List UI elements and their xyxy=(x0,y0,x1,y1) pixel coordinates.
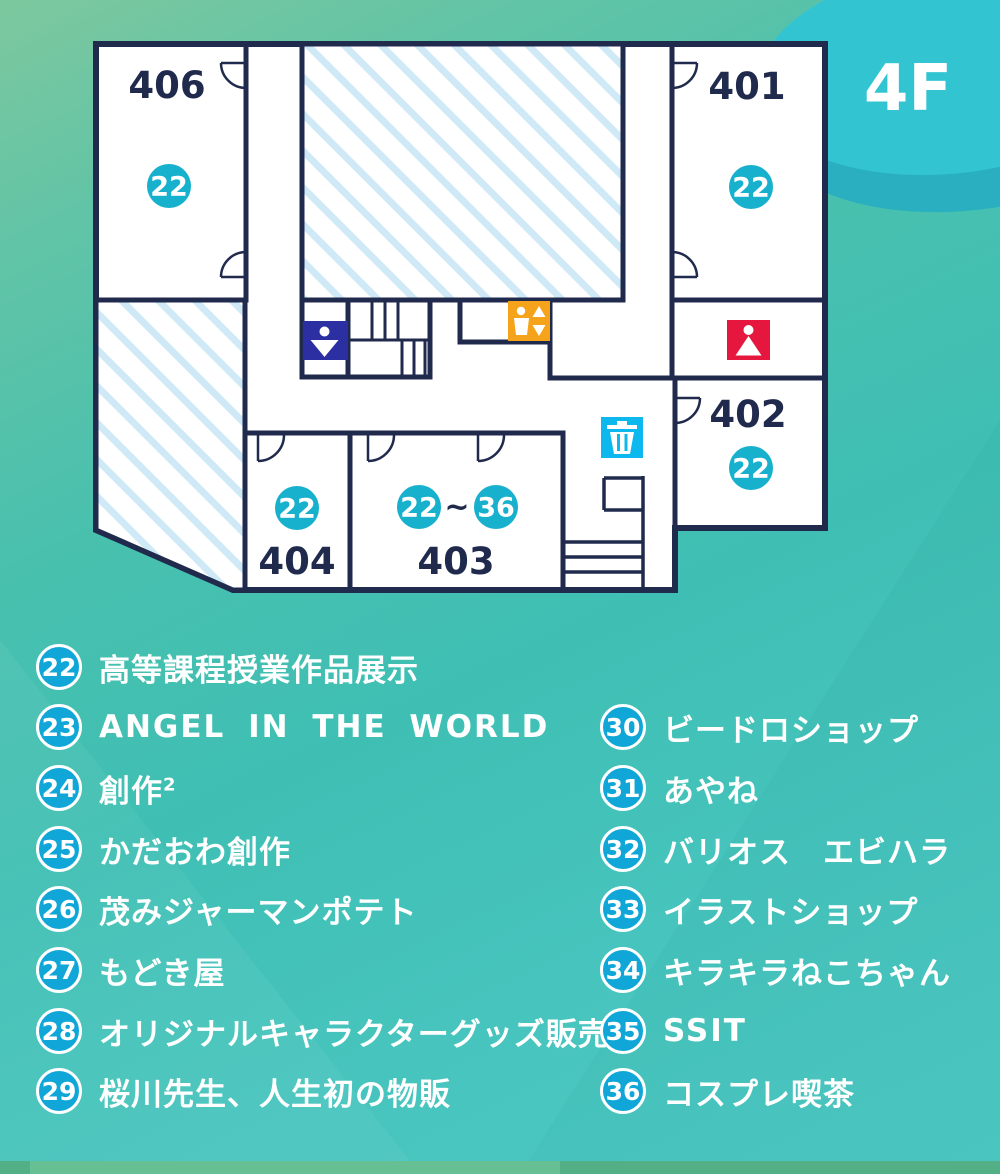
womens-restroom-icon xyxy=(727,320,770,360)
hatch-area-left xyxy=(96,300,245,590)
legend-num-badge: 26 xyxy=(36,886,82,932)
legend-num-badge: 35 xyxy=(600,1008,646,1054)
legend-row: 35 SSIT xyxy=(600,1008,747,1054)
legend-row: 32 バリオス エビハラ xyxy=(600,826,951,872)
booth-badge-402: 22 xyxy=(732,454,770,485)
hatch-area-center xyxy=(302,44,623,300)
legend-row: 33 イラストショップ xyxy=(600,886,918,932)
legend-num-badge: 34 xyxy=(600,947,646,993)
booth-badge-401: 22 xyxy=(732,173,770,204)
legend-label: ビードロショップ xyxy=(663,705,919,750)
legend-label: バリオス エビハラ xyxy=(663,827,951,872)
legend-row: 27 もどき屋 xyxy=(36,947,225,993)
legend-row: 31 あやね xyxy=(600,765,759,811)
legend-num-badge: 30 xyxy=(600,704,646,750)
legend-label-sup: 2 xyxy=(163,774,177,795)
legend-row: 28 オリジナルキャラクターグッズ販売 xyxy=(36,1008,610,1054)
legend-label: 桜川先生、人生初の物販 xyxy=(99,1069,451,1114)
legend-num-badge: 32 xyxy=(600,826,646,872)
legend-label: イラストショップ xyxy=(663,887,918,932)
legend-label: 高等課程授業作品展示 xyxy=(99,645,419,690)
legend-row: 25 かだおわ創作 xyxy=(36,826,291,872)
mens-restroom-icon xyxy=(303,321,348,360)
legend-row: 29 桜川先生、人生初の物販 xyxy=(36,1068,451,1114)
legend-num-badge: 24 xyxy=(36,765,82,811)
legend-num-badge: 25 xyxy=(36,826,82,872)
room-406-number: 406 xyxy=(128,64,205,107)
room-401-number: 401 xyxy=(708,65,785,108)
legend-label-text: 創作 xyxy=(99,774,163,810)
booth-range-tilde: ~ xyxy=(444,490,469,525)
legend-label: キラキラねこちゃん xyxy=(663,948,951,993)
elevator-icon xyxy=(508,301,550,341)
legend-row: 34 キラキラねこちゃん xyxy=(600,947,951,993)
legend-row: 36 コスプレ喫茶 xyxy=(600,1068,855,1114)
legend-num-badge: 29 xyxy=(36,1068,82,1114)
legend-num-badge: 28 xyxy=(36,1008,82,1054)
legend-row: 23 ANGEL IN THE WORLD xyxy=(36,704,549,750)
floor-label: 4F xyxy=(864,52,952,126)
floor-plan-canvas: 4F xyxy=(0,0,1000,1174)
booth-badge-406: 22 xyxy=(150,172,188,203)
legend-num-badge: 33 xyxy=(600,886,646,932)
room-403-number: 403 xyxy=(417,540,494,583)
legend-label: もどき屋 xyxy=(99,948,225,993)
legend-label: 茂みジャーマンポテト xyxy=(99,887,417,932)
legend-num-badge: 27 xyxy=(36,947,82,993)
legend-num-badge: 22 xyxy=(36,644,82,690)
legend-label: SSIT xyxy=(663,1013,747,1049)
legend-label: 創作2 xyxy=(99,766,177,811)
legend-num-badge: 23 xyxy=(36,704,82,750)
legend-row: 24 創作2 xyxy=(36,765,177,811)
booth-badge-403-to: 36 xyxy=(477,493,515,524)
legend-row: 22 高等課程授業作品展示 xyxy=(36,644,419,690)
trash-icon xyxy=(601,417,643,458)
booth-badge-403-from: 22 xyxy=(400,493,438,524)
legend-num-badge: 36 xyxy=(600,1068,646,1114)
booth-badge-404: 22 xyxy=(278,494,316,525)
legend-label: オリジナルキャラクターグッズ販売 xyxy=(99,1009,610,1054)
festival-floor-map-page: { "floor_label": "4F", "map": { "rooms":… xyxy=(0,0,1000,1174)
legend-num-badge: 31 xyxy=(600,765,646,811)
room-402-number: 402 xyxy=(709,393,786,436)
legend-label: ANGEL IN THE WORLD xyxy=(99,709,549,745)
legend-row: 26 茂みジャーマンポテト xyxy=(36,886,417,932)
legend-label: コスプレ喫茶 xyxy=(663,1069,855,1114)
legend-label: あやね xyxy=(663,766,759,811)
room-404-number: 404 xyxy=(258,540,335,583)
legend-row: 30 ビードロショップ xyxy=(600,704,919,750)
bottom-strip-highlight xyxy=(30,1161,560,1174)
legend-label: かだおわ創作 xyxy=(99,827,291,872)
